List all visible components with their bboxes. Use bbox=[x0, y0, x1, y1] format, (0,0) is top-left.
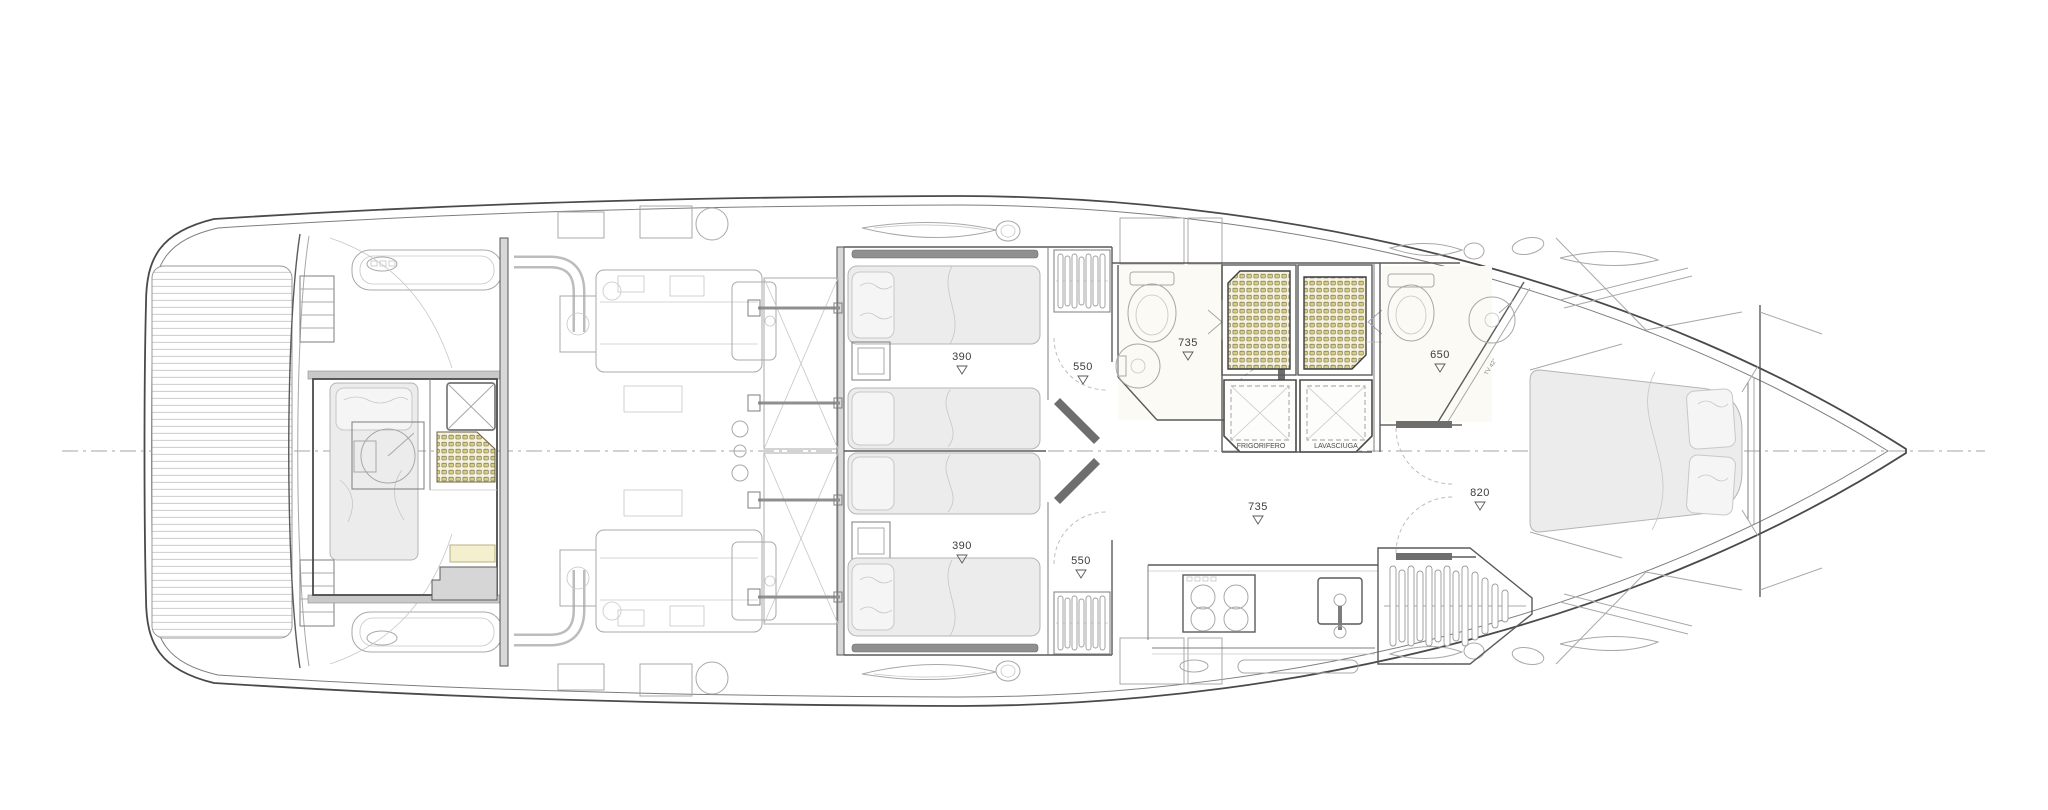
dim-mid-bath: 735 bbox=[1178, 337, 1198, 349]
transom-steps-port bbox=[300, 276, 334, 342]
door-leaf-starboard bbox=[1054, 458, 1100, 504]
dim-fwd-bath: 650 bbox=[1430, 349, 1450, 361]
crew-shower bbox=[447, 383, 495, 430]
dim-port-vestibule: 550 bbox=[1073, 361, 1093, 373]
crew-bench bbox=[450, 545, 495, 562]
shower-grate-forward bbox=[1304, 277, 1366, 369]
teak-deck bbox=[152, 266, 292, 638]
galley bbox=[1148, 565, 1378, 673]
vip-pillow-port bbox=[1686, 388, 1736, 449]
engine-starboard bbox=[514, 490, 776, 696]
port-outer-pillow bbox=[852, 272, 894, 338]
crew-pillow bbox=[336, 388, 412, 430]
shower-grate-mid bbox=[1228, 271, 1290, 369]
hull-window-port bbox=[852, 250, 1038, 258]
shower-forward bbox=[1298, 265, 1390, 375]
crew-cabin bbox=[308, 371, 500, 603]
vip-pillow-starboard bbox=[1686, 454, 1736, 515]
galley-sink bbox=[1318, 578, 1362, 638]
galley-drawer-handle bbox=[1238, 660, 1358, 673]
crew-shower-grate bbox=[437, 432, 495, 482]
dim-stbd-vestibule: 550 bbox=[1071, 555, 1091, 567]
door-leaf-port bbox=[1054, 398, 1100, 444]
floor-plan-drawing: FRIGORIFERO LAVASCIUGA bbox=[0, 0, 2048, 810]
engine-port bbox=[514, 206, 776, 412]
door-leaf-fwd-bath bbox=[1396, 421, 1452, 428]
appliance-washer: LAVASCIUGA bbox=[1300, 380, 1372, 452]
vip-foyer bbox=[1396, 497, 1476, 560]
dim-stbd-cabin: 390 bbox=[952, 540, 972, 552]
stove bbox=[1183, 575, 1255, 632]
dim-port-cabin: 390 bbox=[952, 351, 972, 363]
hanging-locker-port bbox=[1054, 250, 1110, 312]
vip-window-port bbox=[1560, 268, 1692, 308]
yacht-lower-deck-plan: FRIGORIFERO LAVASCIUGA bbox=[0, 0, 2048, 810]
stbd-inner-pillow bbox=[852, 457, 894, 510]
hanging-locker-starboard bbox=[1054, 592, 1110, 654]
fridge-label: FRIGORIFERO bbox=[1237, 443, 1286, 450]
bulkhead-aft-engine bbox=[500, 238, 508, 666]
deck-strip-top bbox=[308, 371, 500, 379]
port-inner-pillow bbox=[852, 392, 894, 445]
door-leaf-wardrobe bbox=[1396, 553, 1452, 560]
washer-label: LAVASCIUGA bbox=[1314, 443, 1358, 450]
transom-steps-starboard bbox=[300, 560, 334, 626]
shower-mid bbox=[1222, 265, 1296, 375]
dim-lobby: 735 bbox=[1248, 501, 1268, 513]
vip-window-starboard bbox=[1560, 594, 1692, 634]
stbd-outer-pillow bbox=[852, 564, 894, 630]
dim-vip-foyer: 820 bbox=[1470, 487, 1490, 499]
appliance-fridge: FRIGORIFERO bbox=[1224, 380, 1296, 452]
hull-window-starboard bbox=[852, 644, 1038, 652]
companionway-step bbox=[432, 567, 497, 600]
